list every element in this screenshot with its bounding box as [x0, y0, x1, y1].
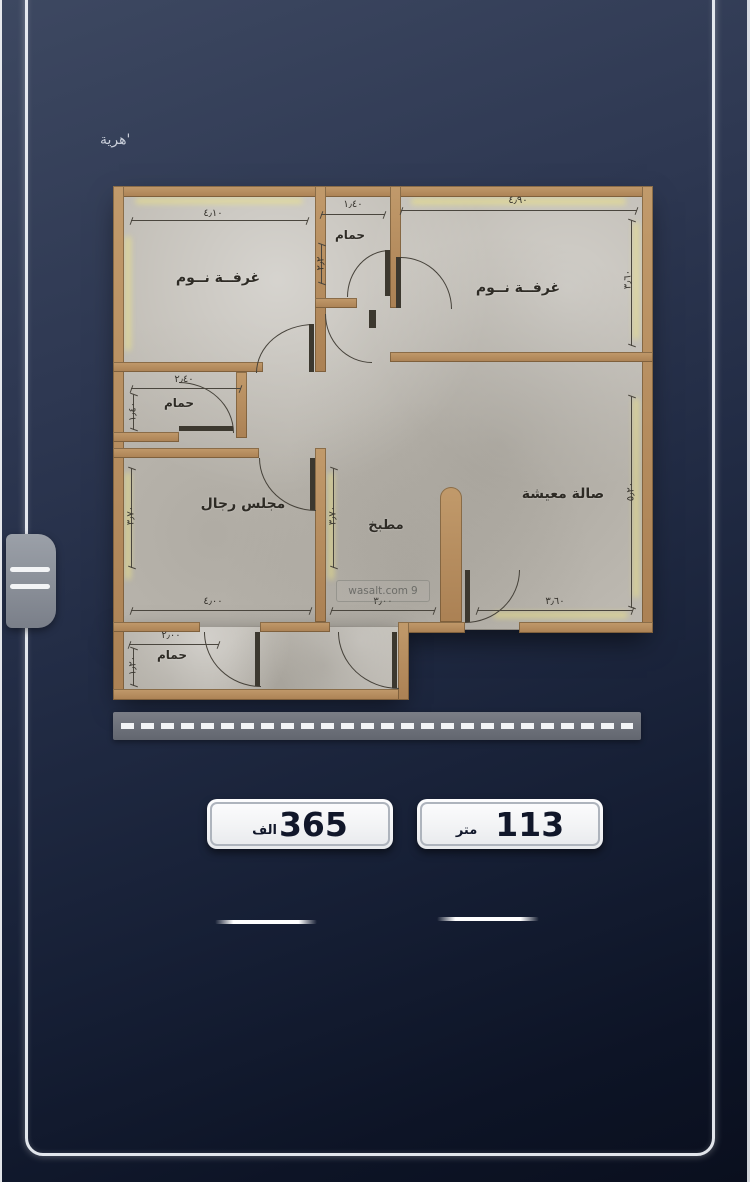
room-label-majlis: مجلس رجال: [173, 496, 313, 512]
dimension-value: ١٫٢٠: [128, 646, 139, 686]
dimension-line: [131, 220, 308, 221]
grip-line: [10, 567, 50, 572]
map-pin-icon: 9: [411, 585, 418, 597]
price-value: 365: [279, 805, 348, 844]
wall: [398, 622, 409, 700]
room-label-bathroom-bottom: حمام: [137, 648, 207, 662]
price-unit: الف: [252, 811, 277, 838]
door-leaf: [396, 257, 401, 308]
dimension-value: ٣٫٧٠: [328, 492, 339, 540]
wall-glow: [633, 222, 639, 340]
wall: [113, 448, 259, 458]
divider-dash: [437, 917, 539, 921]
wall-glow: [135, 198, 303, 204]
wall-glow: [125, 236, 131, 351]
watermark-text: wasalt.com: [348, 585, 408, 597]
dimension-value: ٤٫١٠: [183, 208, 243, 219]
door-leaf: [392, 632, 397, 688]
dimension-value: ٣٫٦٠: [523, 596, 587, 607]
listing-image: 'هرية: [0, 0, 750, 1182]
door-leaf: [309, 324, 314, 372]
door-leaf: [255, 632, 260, 686]
road-strip: [113, 712, 641, 740]
dimension-line: [321, 214, 385, 215]
dimension-line: [131, 610, 311, 611]
wall: [642, 186, 653, 633]
wall: [113, 432, 179, 442]
dimension-line: [129, 644, 219, 645]
wall-glow: [493, 612, 628, 618]
dimension-line: [477, 610, 633, 611]
corner-caption: 'هرية: [100, 132, 130, 148]
side-handle-tab[interactable]: [6, 534, 56, 628]
dimension-value: ١٫٤٠: [325, 199, 381, 210]
wall: [315, 448, 326, 622]
divider-dash: [215, 920, 317, 924]
room-label-bathroom-middle: حمام: [139, 396, 219, 410]
watermark: wasalt.com 9: [336, 580, 430, 602]
dimension-value: ٣٫٦٠: [623, 255, 634, 305]
road-center-dashes: [121, 723, 633, 729]
wall: [401, 622, 465, 633]
door-leaf: [179, 426, 233, 431]
dimension-value: ٢٫٤٠: [149, 374, 219, 385]
door-leaf: [465, 570, 470, 622]
wall: [390, 352, 653, 362]
dimension-value: ٤٫٩٠: [483, 195, 553, 206]
room-label-bedroom-top-left: غرفــة نــوم: [143, 270, 293, 286]
wall: [113, 186, 653, 197]
dimension-line: [331, 610, 435, 611]
room-label-bathroom-top: حمام: [319, 228, 381, 242]
wall: [315, 298, 357, 308]
dimension-line: [401, 210, 637, 211]
dimension-line: [131, 388, 241, 389]
wall: [260, 622, 330, 632]
dimension-value: ٣٫٧٠: [126, 492, 137, 540]
area-unit: متر: [456, 811, 477, 838]
dimension-value: ٥٫٢٠: [626, 466, 637, 518]
wall: [236, 372, 247, 438]
room-label-kitchen: مطبخ: [341, 518, 431, 533]
wall-stub: [440, 487, 462, 622]
wall: [113, 362, 263, 372]
door-jamb: [369, 310, 376, 328]
floor-plan: غرفــة نــوم حمام غرفــة نــوم حمام مجلس…: [113, 186, 653, 700]
photo-left-edge: [0, 0, 2, 1182]
door-leaf: [385, 250, 390, 296]
area-value: 113: [495, 805, 564, 844]
wall: [519, 622, 653, 633]
grip-line: [10, 584, 50, 589]
area-badge: 113 متر: [417, 799, 603, 849]
dimension-value: ٢٫٢: [316, 242, 327, 286]
dimension-value: ٢٫٠٠: [141, 630, 201, 641]
dimension-value: ٤٫٠٠: [173, 596, 253, 607]
wall: [113, 689, 409, 700]
price-badge: 365 الف: [207, 799, 393, 849]
room-label-living-hall: صالة معيشة: [493, 486, 633, 502]
room-label-bedroom-top-right: غرفــة نــوم: [443, 280, 593, 296]
dimension-value: ١٫٤٠: [128, 392, 139, 432]
